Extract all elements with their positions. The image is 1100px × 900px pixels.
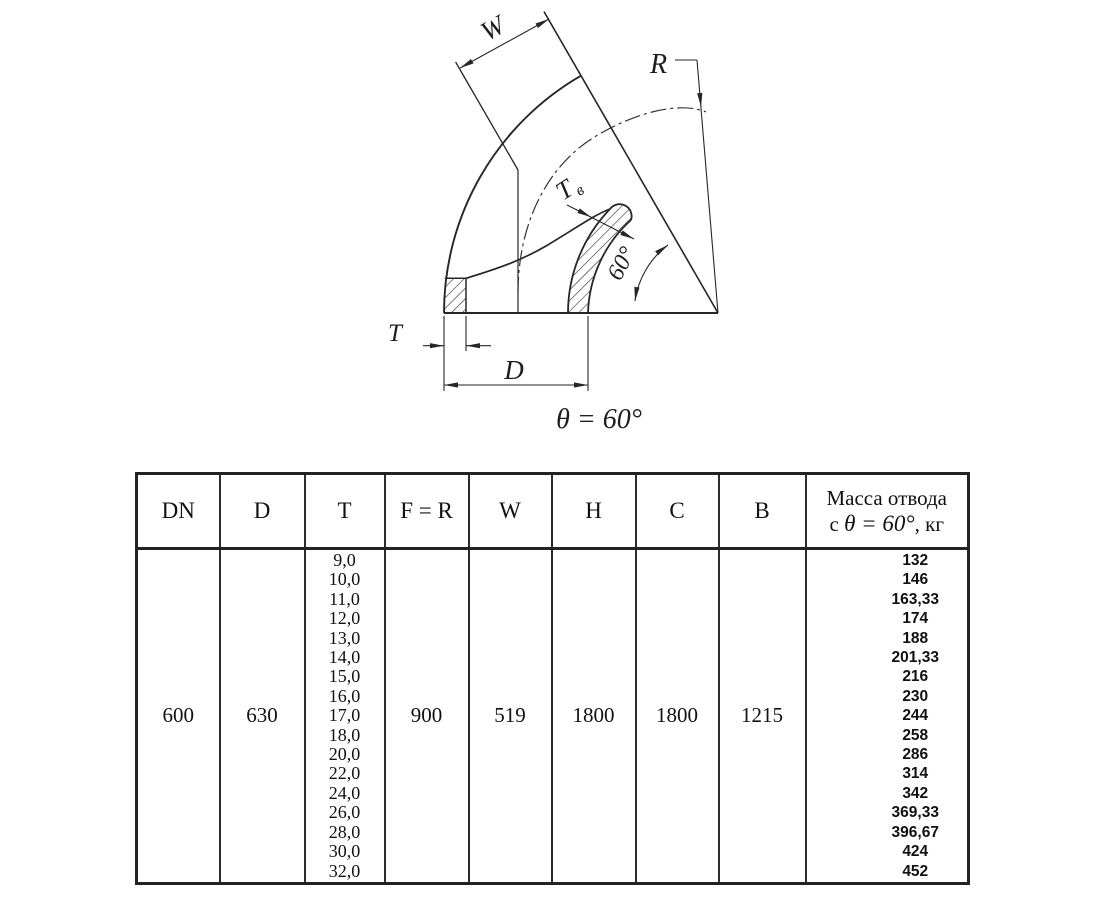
list-item: 13,0	[306, 629, 384, 648]
list-item: 18,0	[306, 726, 384, 745]
cell-dn: 600	[137, 549, 220, 884]
list-item: 188	[807, 629, 968, 648]
list-item: 15,0	[306, 667, 384, 686]
col-header-t: T	[305, 474, 385, 549]
list-item: 14,0	[306, 648, 384, 667]
list-item: 201,33	[807, 648, 968, 667]
cell-b: 1215	[719, 549, 806, 884]
cell-h: 1800	[552, 549, 636, 884]
outer-wall-section-hatch	[445, 278, 466, 313]
col-header-f-r: F = R	[385, 474, 469, 549]
label-w: W	[476, 8, 512, 46]
angle-arrow-top-icon	[655, 243, 669, 255]
cell-t-values: 9,010,011,012,013,014,015,016,017,018,02…	[305, 549, 385, 884]
mass-header-line2: с θ = 60°, кг	[807, 511, 968, 537]
d-arrow-right-icon	[574, 382, 588, 387]
list-item: 244	[807, 706, 968, 725]
t-arrow-left-icon	[430, 343, 444, 348]
list-item: 22,0	[306, 764, 384, 783]
list-item: 342	[807, 784, 968, 803]
table-header-row: DN D T F = R W H C B Масса отвода с θ = …	[137, 474, 969, 549]
list-item: 9,0	[306, 551, 384, 570]
list-item: 174	[807, 609, 968, 628]
list-item: 146	[807, 570, 968, 589]
t-arrow-right-icon	[466, 343, 480, 348]
list-item: 424	[807, 842, 968, 861]
mass-values-list: 132146163,33174188201,332162302442582863…	[807, 550, 968, 882]
cell-c: 1800	[636, 549, 719, 884]
d-arrow-left-icon	[444, 382, 458, 387]
col-header-h: H	[552, 474, 636, 549]
mass-header-line1: Масса отвода	[807, 486, 968, 511]
list-item: 396,67	[807, 823, 968, 842]
list-item: 16,0	[306, 687, 384, 706]
cell-f-r: 900	[385, 549, 469, 884]
angle-arc	[635, 245, 668, 301]
angle-arrow-bottom-icon	[632, 287, 639, 302]
list-item: 12,0	[306, 609, 384, 628]
theta-note: θ = 60°	[556, 404, 642, 435]
col-header-dn: DN	[137, 474, 220, 549]
elbow-technical-drawing: W R 60° Tв	[0, 0, 1100, 465]
t-values-list: 9,010,011,012,013,014,015,016,017,018,02…	[306, 550, 384, 882]
list-item: 230	[807, 687, 968, 706]
list-item: 24,0	[306, 784, 384, 803]
list-item: 258	[807, 726, 968, 745]
list-item: 369,33	[807, 803, 968, 822]
list-item: 163,33	[807, 590, 968, 609]
w-extension-line	[456, 62, 518, 170]
label-t-inner: Tв	[550, 169, 587, 209]
list-item: 28,0	[306, 823, 384, 842]
tv-arrow-2-icon	[620, 230, 635, 241]
dimension-t: T	[388, 316, 491, 391]
col-header-mass: Масса отвода с θ = 60°, кг	[806, 474, 969, 549]
list-item: 32,0	[306, 862, 384, 881]
cell-d: 630	[220, 549, 305, 884]
w-arrow-left-icon	[459, 59, 474, 70]
label-t: T	[388, 320, 404, 347]
list-item: 20,0	[306, 745, 384, 764]
tv-arrow-1-icon	[577, 208, 592, 219]
table-data-row: 600 630 9,010,011,012,013,014,015,016,01…	[137, 549, 969, 884]
cell-mass-values: 132146163,33174188201,332162302442582863…	[806, 549, 969, 884]
list-item: 132	[807, 551, 968, 570]
cell-w: 519	[469, 549, 552, 884]
list-item: 216	[807, 667, 968, 686]
list-item: 286	[807, 745, 968, 764]
list-item: 30,0	[306, 842, 384, 861]
section-hatching	[445, 204, 632, 313]
list-item: 17,0	[306, 706, 384, 725]
col-header-w: W	[469, 474, 552, 549]
label-angle: 60°	[602, 242, 641, 284]
dimensions-table: DN D T F = R W H C B Масса отвода с θ = …	[135, 472, 970, 885]
col-header-b: B	[719, 474, 806, 549]
catalog-page: W R 60° Tв	[0, 0, 1100, 900]
list-item: 11,0	[306, 590, 384, 609]
list-item: 314	[807, 764, 968, 783]
label-d: D	[503, 355, 524, 385]
label-r: R	[649, 49, 667, 80]
list-item: 26,0	[306, 803, 384, 822]
dimension-angle: 60°	[602, 242, 669, 301]
dimension-r: R	[649, 49, 718, 313]
dimension-w: W	[459, 8, 551, 70]
list-item: 10,0	[306, 570, 384, 589]
col-header-c: C	[636, 474, 719, 549]
col-header-d: D	[220, 474, 305, 549]
list-item: 452	[807, 862, 968, 881]
